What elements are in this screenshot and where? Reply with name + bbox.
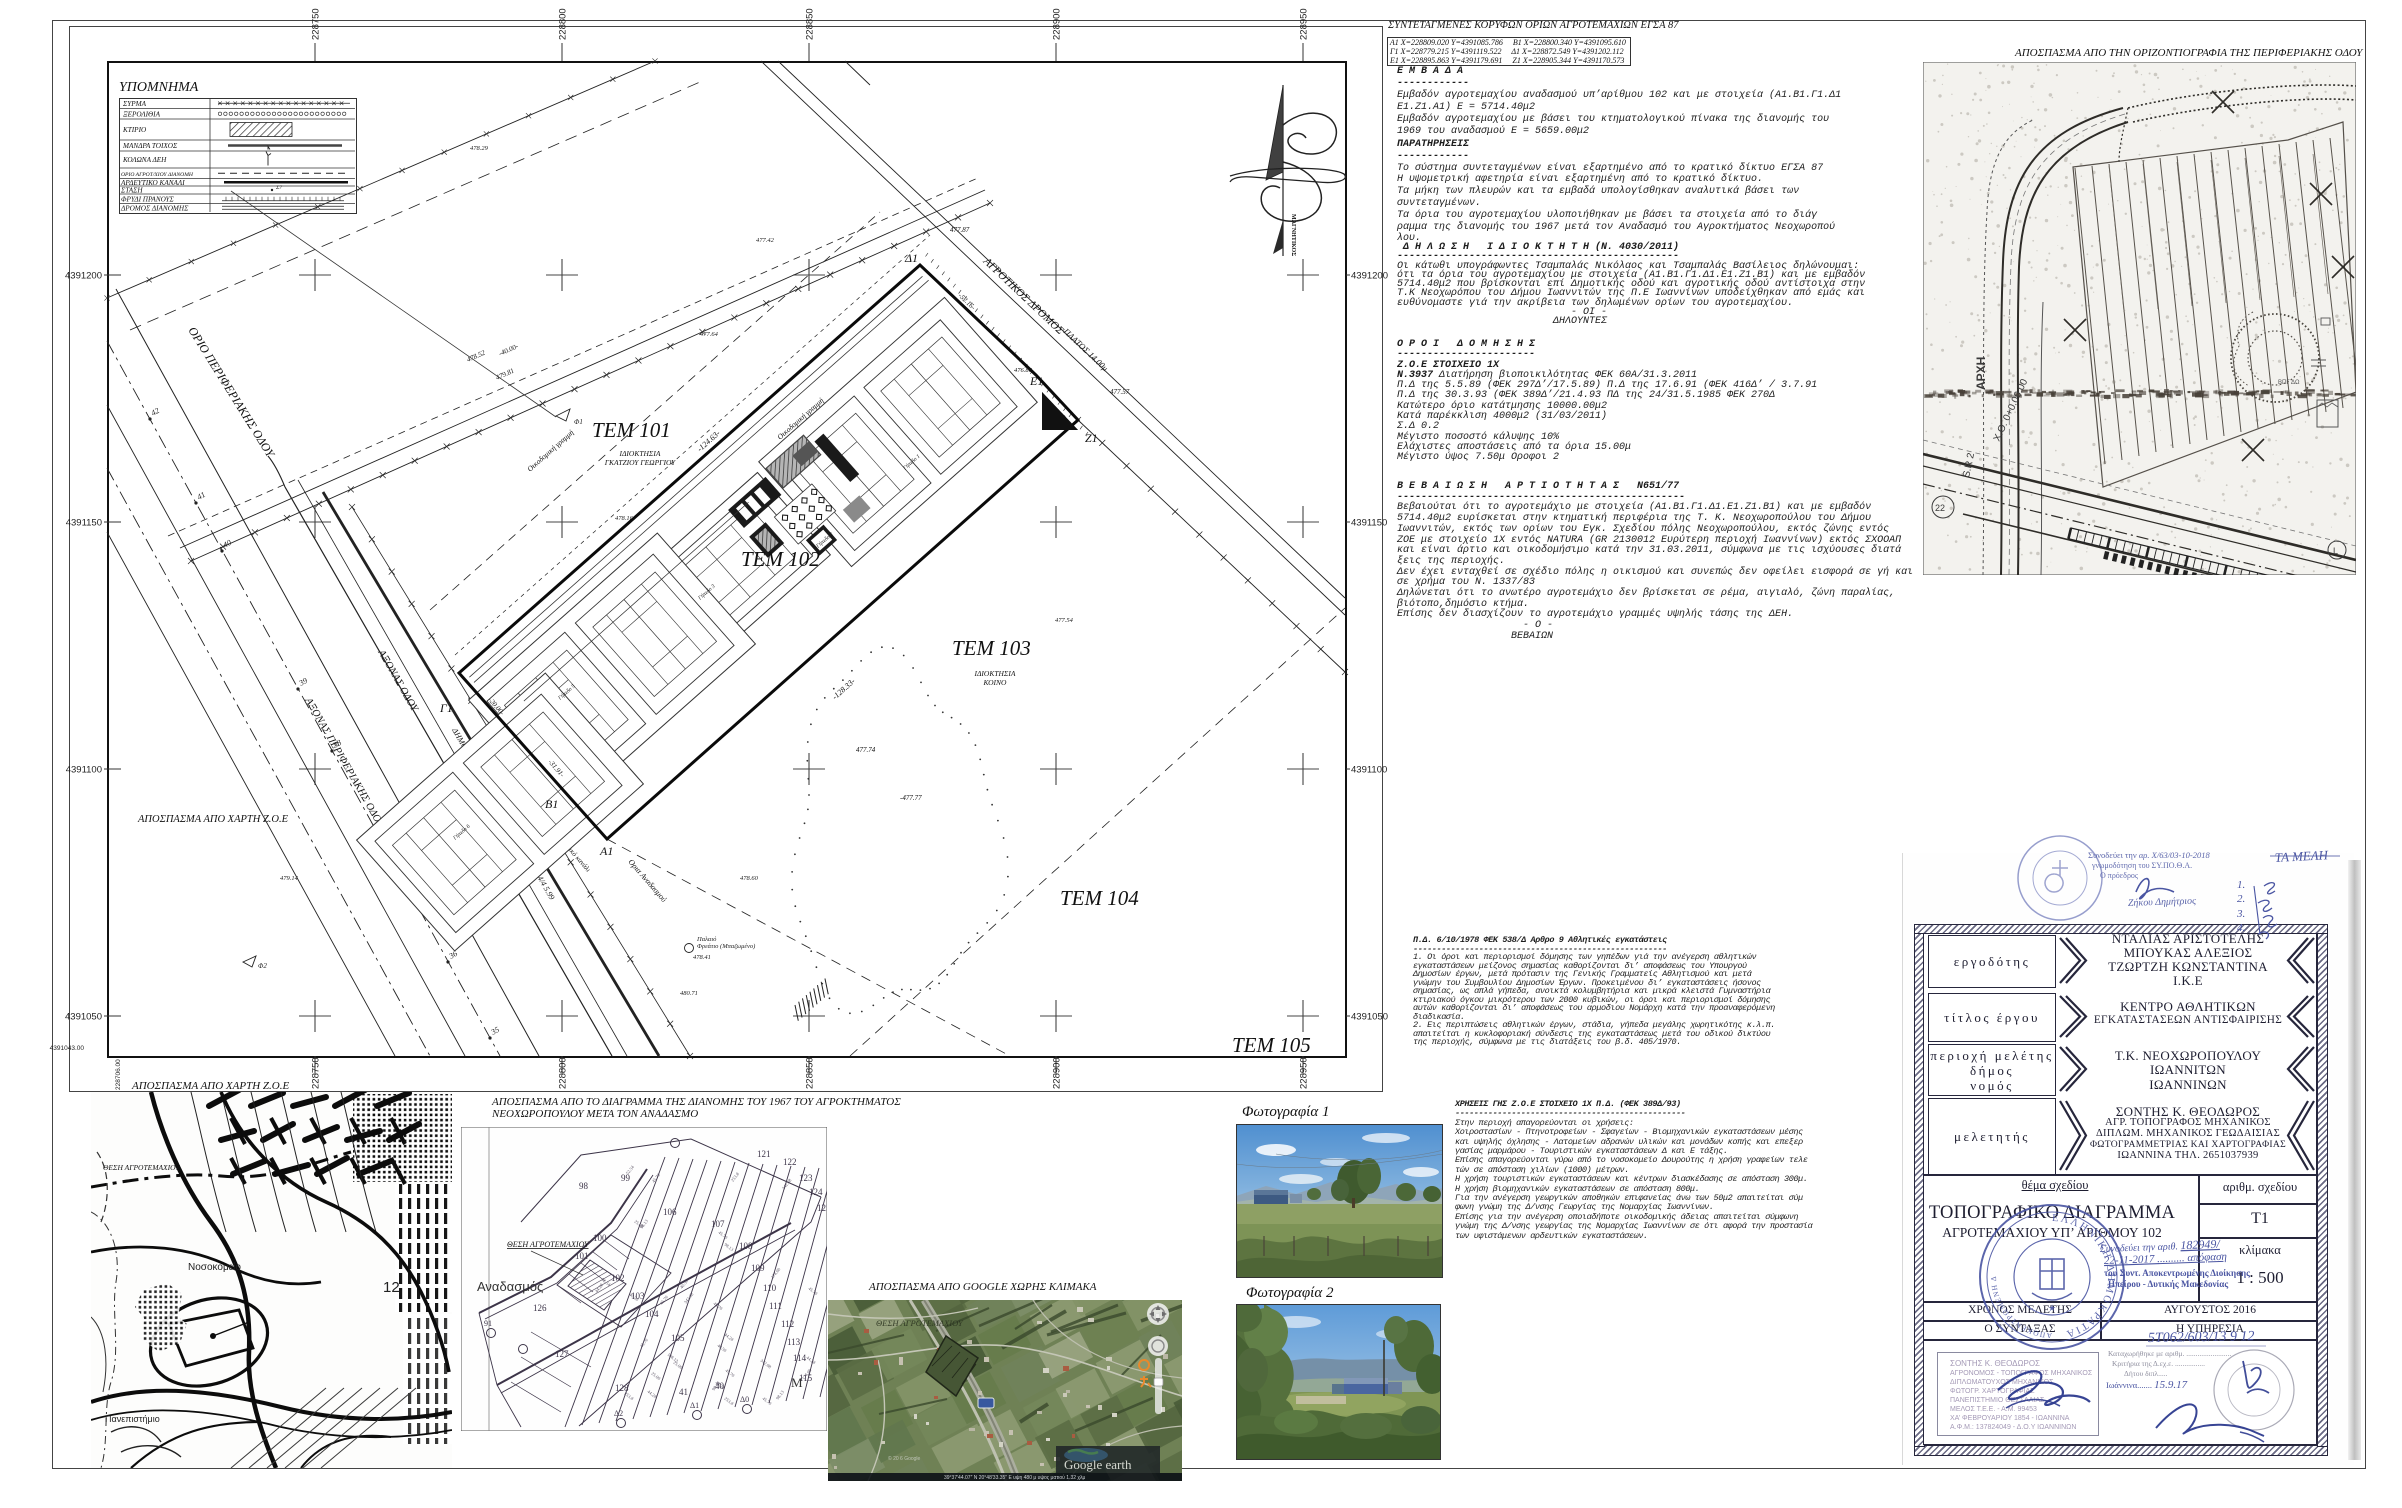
svg-text:2.: 2. — [2237, 893, 2245, 905]
svg-text:γνωμοδότηση του ΣΥ.ΠΟ.Θ.Α.: γνωμοδότηση του ΣΥ.ΠΟ.Θ.Α. — [2091, 861, 2192, 870]
svg-text:ΣΟΝΤΗΣ Κ. ΘΕΟΔΩΡΟΣ: ΣΟΝΤΗΣ Κ. ΘΕΟΔΩΡΟΣ — [1950, 1359, 2040, 1368]
svg-text:4.: 4. — [2237, 922, 2245, 934]
svg-text:Ιωάννινα....... 15.9.17: Ιωάννινα....... 15.9.17 — [2106, 1379, 2188, 1391]
svg-text:5Τ062/603/13 9 12: 5Τ062/603/13 9 12 — [2148, 1329, 2255, 1346]
svg-text:3.: 3. — [2236, 908, 2245, 920]
svg-text:ΦΩΤΟΓΡ. ΧΑΡΤΟΓΡΑΦΙΑΣ: ΦΩΤΟΓΡ. ΧΑΡΤΟΓΡΑΦΙΑΣ — [1950, 1388, 2035, 1395]
svg-text:Κριτήρια της Δ.εχ.ε. .........: Κριτήρια της Δ.εχ.ε. ................ — [2112, 1359, 2205, 1368]
svg-text:Συνοδεύει την αρ. Χ/63/03-10-2: Συνοδεύει την αρ. Χ/63/03-10-2018 — [2088, 850, 2210, 860]
svg-text:1.: 1. — [2237, 879, 2245, 891]
svg-text:Ζήκου Δημήτριος: Ζήκου Δημήτριος — [2128, 896, 2198, 909]
svg-text:του Συντ. Αποκεντρωμένης Διοίκ: του Συντ. Αποκεντρωμένης Διοίκησης — [2104, 1268, 2250, 1278]
svg-text:Ο πρόεδρος: Ο πρόεδρος — [2100, 871, 2139, 880]
svg-text:ΑΠΟΚΕΝΤΡΩΜΕΝΗ ΔΙΟΙΚΗΣΗ ΗΠΕΙΡΟΥ: ΑΠΟΚΕΝΤΡΩΜΕΝΗ ΔΙΟΙΚΗΣΗ ΗΠΕΙΡΟΥ — [0, 0, 2052, 1340]
svg-text:Ηπείρου - Δυτικής Μακεδονίας: Ηπείρου - Δυτικής Μακεδονίας — [2108, 1279, 2228, 1289]
svg-text:ΜΕΛΟΣ Τ.Ε.Ε. - Α.Μ. 99453: ΜΕΛΟΣ Τ.Ε.Ε. - Α.Μ. 99453 — [1950, 1406, 2037, 1413]
svg-text:ΧΑ’ ΦΕΒΡΟΥΑΡΙΟΥ 1854 - ΙΩΑΝΝΙΝ: ΧΑ’ ΦΕΒΡΟΥΑΡΙΟΥ 1854 - ΙΩΑΝΝΙΝΑ — [1950, 1415, 2070, 1422]
svg-text:ΠΑΝΕΠΙΣΤΗΜΙΟ ΘΕΣΣΑΛΙΑΣ: ΠΑΝΕΠΙΣΤΗΜΙΟ ΘΕΣΣΑΛΙΑΣ — [1950, 1397, 2045, 1404]
svg-text:Καταχωρήθηκε με αριθμ. .......: Καταχωρήθηκε με αριθμ. .................… — [2108, 1349, 2231, 1358]
svg-text:Α.Φ.Μ.: 137824049 - Δ.Ο.Υ ΙΩΑΝ: Α.Φ.Μ.: 137824049 - Δ.Ο.Υ ΙΩΑΝΝΙΝΩΝ — [1950, 1424, 2076, 1431]
svg-text:Δήτου διπλ.....: Δήτου διπλ..... — [2124, 1369, 2168, 1378]
svg-text:★: ★ — [2048, 1303, 2056, 1313]
